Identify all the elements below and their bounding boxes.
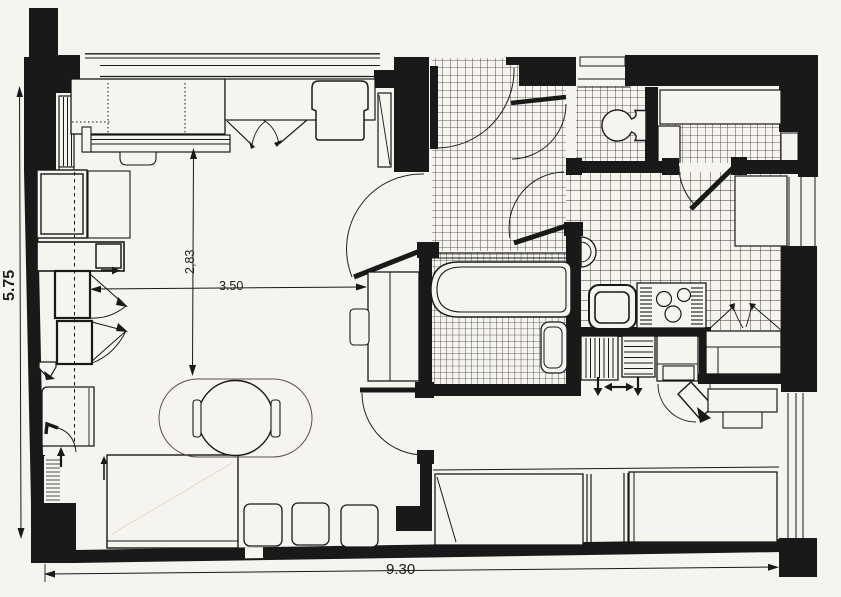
svg-text:2,83: 2,83: [183, 250, 197, 274]
svg-text:9.30: 9.30: [386, 561, 415, 578]
svg-text:3.50: 3.50: [219, 279, 243, 293]
svg-text:5.75: 5.75: [1, 270, 18, 301]
